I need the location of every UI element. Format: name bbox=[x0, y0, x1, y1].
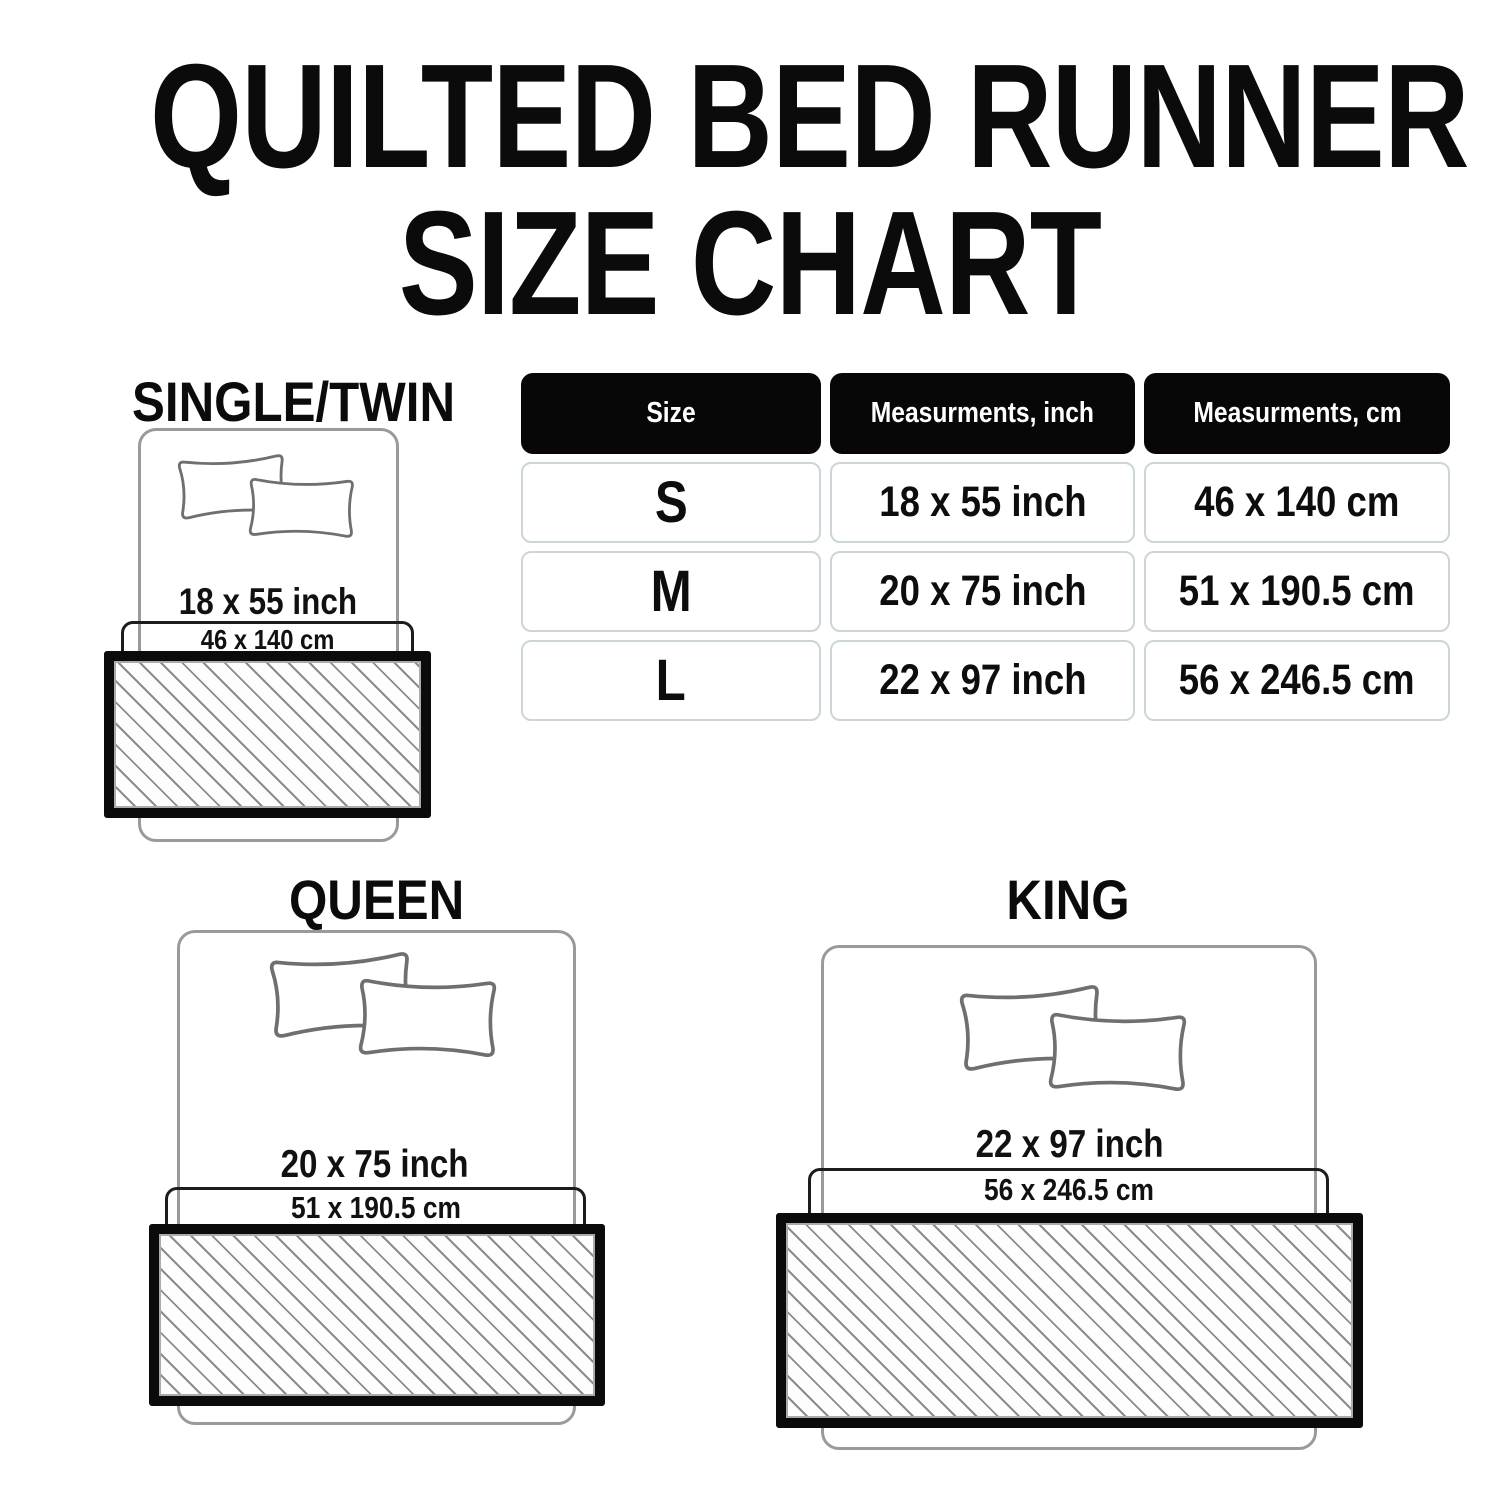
queen-label: QUEEN bbox=[197, 872, 557, 928]
poster-title: QUILTED BED RUNNER SIZE CHART bbox=[0, 44, 1500, 337]
size-chart-poster: QUILTED BED RUNNER SIZE CHART Size Measu… bbox=[0, 0, 1500, 1500]
table-cell-s-inch: 18 x 55 inch bbox=[830, 462, 1135, 543]
table-header-cm-label: Measurments, cm bbox=[1193, 397, 1401, 430]
table-header-cm: Measurments, cm bbox=[1144, 373, 1450, 454]
cell-text: 46 x 140 cm bbox=[1194, 478, 1399, 527]
king-label-text: KING bbox=[1006, 872, 1129, 928]
table-header-inch-label: Measurments, inch bbox=[871, 397, 1094, 430]
cell-text: L bbox=[656, 647, 686, 714]
table-cell-l-size: L bbox=[521, 640, 821, 721]
queen-bed-runner bbox=[149, 1224, 605, 1406]
table-cell-m-inch: 20 x 75 inch bbox=[830, 551, 1135, 632]
queen-label-text: QUEEN bbox=[289, 872, 464, 928]
queen-cm-dimension: 51 x 190.5 cm bbox=[165, 1191, 586, 1225]
cell-text: 20 x 75 inch bbox=[879, 567, 1086, 616]
table-cell-m-size: M bbox=[521, 551, 821, 632]
queen-cm-text: 51 x 190.5 cm bbox=[291, 1191, 461, 1225]
table-header-size-label: Size bbox=[646, 397, 695, 430]
title-line-1: QUILTED BED RUNNER bbox=[150, 44, 1350, 191]
queen-inch-dimension: 20 x 75 inch bbox=[175, 1144, 575, 1187]
pillow-icon bbox=[347, 971, 508, 1063]
table-header-size: Size bbox=[521, 373, 821, 454]
king-bed-runner bbox=[776, 1213, 1363, 1428]
table-cell-l-cm: 56 x 246.5 cm bbox=[1144, 640, 1450, 721]
queen-inch-text: 20 x 75 inch bbox=[281, 1144, 469, 1187]
cell-text: S bbox=[655, 469, 688, 536]
king-inch-text: 22 x 97 inch bbox=[976, 1124, 1164, 1167]
cell-text: 51 x 190.5 cm bbox=[1179, 567, 1415, 616]
table-cell-m-cm: 51 x 190.5 cm bbox=[1144, 551, 1450, 632]
table-header-inch: Measurments, inch bbox=[830, 373, 1135, 454]
pillow-icon bbox=[1037, 1005, 1198, 1097]
single-twin-cm-text: 46 x 140 cm bbox=[201, 625, 335, 656]
table-cell-s-size: S bbox=[521, 462, 821, 543]
single-twin-label-text: SINGLE/TWIN bbox=[132, 374, 455, 430]
pillow-icon bbox=[244, 467, 359, 548]
single-twin-cm-dimension: 46 x 140 cm bbox=[121, 625, 414, 656]
table-cell-s-cm: 46 x 140 cm bbox=[1144, 462, 1450, 543]
king-cm-text: 56 x 246.5 cm bbox=[984, 1173, 1154, 1207]
size-table: Size Measurments, inch Measurments, cm S… bbox=[521, 373, 1450, 721]
title-line-2: SIZE CHART bbox=[150, 191, 1350, 338]
king-inch-dimension: 22 x 97 inch bbox=[820, 1124, 1320, 1167]
single-twin-bed-runner bbox=[104, 651, 431, 818]
single-twin-inch-dimension: 18 x 55 inch bbox=[128, 582, 408, 623]
table-cell-l-inch: 22 x 97 inch bbox=[830, 640, 1135, 721]
single-twin-inch-text: 18 x 55 inch bbox=[179, 582, 357, 623]
cell-text: 22 x 97 inch bbox=[879, 656, 1086, 705]
king-label: KING bbox=[888, 872, 1248, 928]
cell-text: 56 x 246.5 cm bbox=[1179, 656, 1415, 705]
single-twin-label: SINGLE/TWIN bbox=[110, 374, 430, 430]
king-cm-dimension: 56 x 246.5 cm bbox=[808, 1173, 1329, 1207]
cell-text: M bbox=[650, 558, 691, 625]
cell-text: 18 x 55 inch bbox=[879, 478, 1086, 527]
